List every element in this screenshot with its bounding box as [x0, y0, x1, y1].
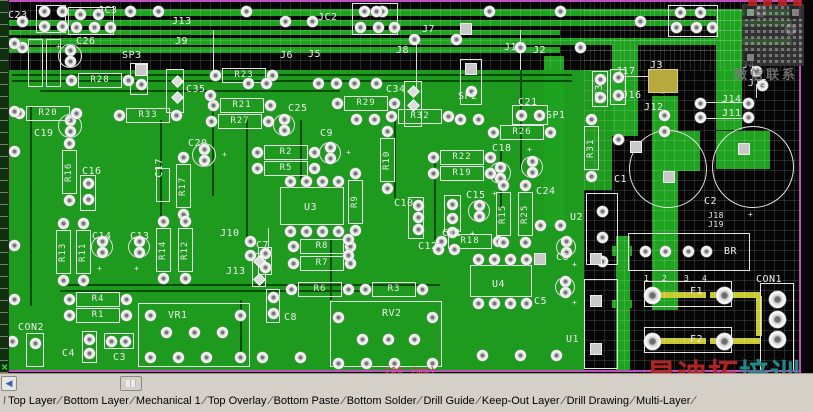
pad — [331, 78, 342, 89]
pad — [498, 237, 509, 248]
pad — [105, 22, 116, 33]
resistor-outline: R5 — [264, 161, 308, 176]
inner-trace — [434, 152, 436, 240]
silk-label: U2 — [570, 212, 583, 223]
pad — [443, 111, 454, 122]
pad — [286, 284, 297, 295]
pcb-canvas[interactable]: R28R23R20R33R21R27R29R32R2R5R22R19R26R8R… — [0, 0, 813, 373]
silk-label: 4 — [702, 274, 707, 283]
smd-pad — [590, 343, 602, 355]
smd-pad — [630, 141, 642, 153]
pad — [65, 56, 76, 67]
smd-pad — [738, 143, 750, 155]
pad — [428, 168, 439, 179]
pad — [333, 358, 344, 369]
resistor-outline: R25 — [518, 192, 533, 236]
pad — [369, 114, 380, 125]
left-ruler — [0, 0, 9, 373]
pad — [39, 21, 50, 32]
pad — [263, 116, 274, 127]
pad — [560, 276, 571, 287]
silk-label: C8 — [284, 312, 297, 323]
pad — [635, 16, 646, 27]
pad — [474, 211, 485, 222]
resistor-outline: R3 — [372, 282, 416, 297]
silk-label: C17 — [154, 158, 165, 178]
silk-label: + — [527, 145, 532, 154]
pad — [707, 22, 718, 33]
pad — [489, 298, 500, 309]
pad — [488, 127, 499, 138]
silk-label: C3 — [113, 352, 126, 363]
silk-label: VR1 — [168, 310, 188, 321]
pad — [171, 110, 182, 121]
pad — [9, 146, 20, 157]
pad — [349, 78, 360, 89]
pad — [595, 74, 606, 85]
silk-label: J13 — [172, 16, 192, 27]
pad — [97, 247, 108, 258]
pad — [307, 16, 318, 27]
gold-pad-area — [648, 69, 678, 93]
pad — [78, 275, 89, 286]
pad — [521, 254, 532, 265]
scrollbar-thumb[interactable] — [120, 376, 142, 391]
pad — [413, 224, 424, 235]
resistor-outline: R12 — [178, 228, 193, 272]
pad — [65, 126, 76, 137]
silk-label: 1 — [644, 274, 649, 283]
pad — [309, 163, 320, 174]
silk-label: + — [56, 42, 61, 51]
pad — [561, 236, 572, 247]
pad — [485, 168, 496, 179]
component-outline — [166, 69, 184, 113]
pad — [83, 178, 94, 189]
pad — [360, 284, 371, 295]
silk-label: CON1 — [756, 274, 782, 285]
pad — [451, 34, 462, 45]
pad — [136, 79, 147, 90]
silk-label: 3 — [684, 274, 689, 283]
silk-line — [213, 30, 214, 74]
silk-label: J19 — [708, 220, 724, 229]
pad — [332, 98, 343, 109]
pad — [125, 6, 136, 17]
component-outline — [28, 39, 43, 87]
pad — [84, 334, 95, 345]
pad — [64, 195, 75, 206]
pad — [586, 114, 597, 125]
pad — [498, 180, 509, 191]
pad — [9, 294, 20, 305]
layer-tab-bottom-solder[interactable]: Bottom Solder — [345, 392, 419, 407]
smd-pad — [590, 295, 602, 307]
pad — [382, 183, 393, 194]
pad — [586, 171, 597, 182]
pad — [660, 246, 671, 257]
silk-label: J16 — [622, 90, 642, 101]
silk-label: + — [134, 264, 139, 273]
pad — [516, 110, 527, 121]
pad — [210, 70, 221, 81]
resistor-outline: R17 — [176, 164, 191, 208]
pad — [413, 200, 424, 211]
layer-tab-bottom-paste[interactable]: Bottom Paste — [272, 392, 342, 407]
layer-tab-top-layer[interactable]: Top Layer — [6, 392, 58, 407]
silk-label: J13 — [226, 266, 246, 277]
pad — [64, 310, 75, 321]
pad — [534, 110, 545, 121]
silk-label: CON2 — [18, 322, 44, 333]
pad — [357, 334, 368, 345]
resistor-outline: R8 — [300, 239, 344, 254]
silk-label: + — [346, 148, 351, 157]
pad — [545, 127, 556, 138]
pad — [217, 327, 228, 338]
large-capacitor-outline — [712, 126, 794, 208]
pad — [474, 200, 485, 211]
pad — [382, 126, 393, 137]
silk-label: C18 — [492, 143, 512, 154]
silk-label: SP1 — [546, 110, 566, 121]
qr-finder-icon — [744, 51, 757, 64]
pad — [355, 22, 366, 33]
pad — [409, 334, 420, 345]
pad — [477, 350, 488, 361]
silk-label: + — [492, 189, 497, 198]
silk-label: J6 — [280, 50, 293, 61]
silk-label: C12 — [418, 241, 438, 252]
silk-label: J10 — [220, 228, 240, 239]
silk-label: J9 — [175, 36, 188, 47]
pad — [449, 244, 460, 255]
pad — [535, 220, 546, 231]
silk-label: C26 — [76, 36, 96, 47]
pad — [180, 273, 191, 284]
pad — [205, 90, 216, 101]
pad — [268, 308, 279, 319]
pad — [527, 156, 538, 167]
smd-pad — [460, 23, 472, 35]
pad — [359, 6, 370, 17]
pad — [560, 287, 571, 298]
silk-label: C14 — [92, 231, 112, 242]
pad — [555, 220, 566, 231]
smd-pad — [590, 253, 602, 265]
pad — [57, 6, 68, 17]
pad — [71, 108, 82, 119]
silk-label: 2 — [662, 274, 667, 283]
silk-label: F1 — [690, 286, 703, 297]
pad — [288, 258, 299, 269]
pad — [301, 176, 312, 187]
pad — [134, 247, 145, 258]
pad — [659, 126, 670, 137]
smd-pad — [135, 64, 147, 76]
keepout-line-top — [0, 0, 801, 2]
pad — [178, 152, 189, 163]
red-watermark-fragment — [748, 0, 806, 6]
resistor-outline: R2 — [264, 145, 308, 160]
silk-label: U1 — [566, 334, 579, 345]
resistor-outline: R22 — [440, 150, 484, 165]
pad — [261, 78, 272, 89]
smd-pad — [465, 63, 477, 75]
large-pad — [769, 311, 786, 328]
pad — [343, 284, 354, 295]
pad — [106, 336, 117, 347]
pad — [671, 22, 682, 33]
pad — [555, 6, 566, 17]
silk-label: C11 — [442, 228, 462, 239]
inner-trace — [30, 106, 32, 306]
pad — [58, 275, 69, 286]
pad — [252, 147, 263, 158]
pad — [9, 240, 20, 251]
silk-label: + — [470, 229, 475, 238]
pad — [285, 226, 296, 237]
pad — [428, 152, 439, 163]
pad — [743, 98, 754, 109]
silk-label: RV2 — [382, 308, 402, 319]
silk-label: C15 — [466, 190, 486, 201]
large-pad — [716, 333, 733, 350]
resistor-outline: R28 — [78, 73, 122, 88]
pad — [597, 206, 608, 217]
pad — [427, 312, 438, 323]
pad — [371, 6, 382, 17]
pad — [268, 292, 279, 303]
pad — [9, 106, 20, 117]
silk-label: + — [222, 150, 227, 159]
silk-label: C6 — [556, 252, 569, 263]
pad — [57, 21, 68, 32]
silk-label: C4 — [62, 348, 75, 359]
silk-label: J17 — [616, 66, 636, 77]
pad — [455, 114, 466, 125]
pad — [208, 100, 219, 111]
silk-label: J7 — [422, 24, 435, 35]
pad — [505, 254, 516, 265]
pad — [695, 112, 706, 123]
silk-label: U3 — [304, 202, 317, 213]
pad — [473, 254, 484, 265]
pad — [58, 218, 69, 229]
silk-label: C24 — [536, 186, 556, 197]
pad — [473, 298, 484, 309]
pad — [447, 199, 458, 210]
pad — [252, 163, 263, 174]
silk-label: J3 — [650, 60, 663, 71]
large-pad — [769, 331, 786, 348]
resistor-outline: R21 — [220, 98, 264, 113]
pad — [180, 216, 191, 227]
pad — [64, 138, 75, 149]
pad — [241, 6, 252, 17]
silk-label: J14 — [722, 94, 742, 105]
silk-label: JC3 — [98, 5, 118, 16]
pad — [473, 114, 484, 125]
silk-label: + — [572, 298, 577, 307]
silk-label: + — [748, 210, 753, 219]
qr-code-watermark — [742, 4, 804, 66]
silk-label: C33 — [594, 84, 605, 104]
pad — [743, 112, 754, 123]
resistor-outline: R14 — [156, 228, 171, 272]
layer-tab-multi-layer[interactable]: Multi-Layer — [634, 392, 692, 407]
large-pad — [644, 287, 661, 304]
resistor-outline: R10 — [380, 138, 395, 182]
pad — [199, 155, 210, 166]
pad — [173, 352, 184, 363]
pad — [84, 348, 95, 359]
pad — [30, 338, 41, 349]
silk-label: J1 — [504, 42, 517, 53]
pad — [505, 298, 516, 309]
pcb-editor-screen: R28R23R20R33R21R27R29R32R2R5R22R19R26R8R… — [0, 0, 813, 412]
pad — [383, 334, 394, 345]
pad — [447, 213, 458, 224]
horizontal-scrollbar[interactable]: ◀ — [0, 373, 813, 392]
pad — [389, 98, 400, 109]
pad — [350, 168, 361, 179]
pad — [257, 352, 268, 363]
resistor-outline: R26 — [500, 125, 544, 140]
pad — [373, 22, 384, 33]
layer-tab-bar: \Top Layer/Bottom Layer/Mechanical 1/Top… — [0, 392, 813, 412]
resistor-outline: R11 — [76, 230, 91, 274]
layer-tab-keep-out-layer[interactable]: Keep-Out Layer — [480, 392, 562, 407]
pad — [333, 226, 344, 237]
pad — [235, 352, 246, 363]
silk-label: C1 — [614, 174, 627, 185]
qr-finder-icon — [744, 6, 757, 19]
silk-label: JC2 — [318, 12, 338, 23]
pad — [521, 298, 532, 309]
pad — [343, 234, 354, 245]
layer-tab-mechanical-1[interactable]: Mechanical 1 — [134, 392, 203, 407]
smd-pad — [663, 171, 675, 183]
pad — [515, 350, 526, 361]
silk-label: F2 — [690, 334, 703, 345]
pad — [527, 167, 538, 178]
pad — [121, 310, 132, 321]
pad — [317, 226, 328, 237]
qr-finder-icon — [789, 6, 802, 19]
silk-label: J18 — [708, 211, 724, 220]
silk-label: J11 — [722, 108, 742, 119]
pad — [145, 352, 156, 363]
pad — [280, 16, 291, 27]
pad — [675, 7, 686, 18]
pad — [158, 273, 169, 284]
pad — [153, 6, 164, 17]
silk-label: C9 — [320, 128, 333, 139]
resistor-outline: R13 — [56, 230, 71, 274]
pad — [288, 241, 299, 252]
resistor-outline: R9 — [348, 180, 363, 224]
silk-label: C35 — [186, 84, 206, 95]
pad — [39, 6, 50, 17]
large-pad — [769, 291, 786, 308]
pad — [520, 180, 531, 191]
pad — [695, 98, 706, 109]
pad — [409, 34, 420, 45]
pad — [71, 22, 82, 33]
smd-pad — [534, 253, 546, 265]
resistor-outline: R15 — [496, 192, 511, 236]
silk-label: C25 — [288, 103, 308, 114]
large-pad — [644, 333, 661, 350]
pad — [640, 246, 651, 257]
pad — [66, 75, 77, 86]
silk-label: U4 — [492, 279, 505, 290]
layer-tab-drill-drawing[interactable]: Drill Drawing — [565, 392, 631, 407]
silk-label: C20 — [188, 138, 208, 149]
pad — [201, 352, 212, 363]
silk-label: C21 — [518, 97, 538, 108]
pad — [386, 111, 397, 122]
silk-label: C34 — [386, 84, 406, 95]
pad — [597, 232, 608, 243]
silk-label: + — [572, 260, 577, 269]
pad — [120, 336, 131, 347]
silk-label: C23 — [8, 10, 28, 21]
silk-label: C10 — [394, 198, 414, 209]
resistor-outline: R32 — [398, 109, 442, 124]
layer-tab-bottom-layer[interactable]: Bottom Layer — [61, 392, 130, 407]
pad — [361, 358, 372, 369]
layer-tab-drill-guide[interactable]: Drill Guide — [421, 392, 476, 407]
silk-label: J5 — [308, 49, 321, 60]
silk-label: J8 — [396, 45, 409, 56]
pad — [551, 350, 562, 361]
pad — [495, 162, 506, 173]
pad — [351, 114, 362, 125]
pad — [309, 147, 320, 158]
large-pad — [716, 287, 733, 304]
pad — [317, 176, 328, 187]
pad — [371, 78, 382, 89]
layer-tab-top-overlay[interactable]: Top Overlay — [206, 392, 269, 407]
pad — [75, 9, 86, 20]
copper-trace — [8, 38, 792, 45]
pad — [489, 254, 500, 265]
pad — [613, 134, 624, 145]
silk-label: + — [97, 264, 102, 273]
resistor-outline: R4 — [76, 292, 120, 307]
pad — [325, 142, 336, 153]
pad — [243, 78, 254, 89]
pad — [417, 284, 428, 295]
pad — [83, 194, 94, 205]
pad — [145, 310, 156, 321]
silk-label: SP2 — [458, 91, 478, 102]
pad — [9, 38, 20, 49]
resistor-outline: R6 — [298, 282, 342, 297]
resistor-outline: R20 — [26, 106, 70, 121]
scroll-left-button[interactable]: ◀ — [1, 376, 17, 391]
pad — [279, 125, 290, 136]
origin-marker-icon: × — [1, 360, 8, 373]
silk-label: C16 — [82, 166, 102, 177]
inner-trace — [246, 116, 248, 240]
silk-label: C5 — [534, 296, 547, 307]
pad — [301, 226, 312, 237]
silk-label: C2 — [704, 196, 717, 207]
silk-label: C19 — [34, 128, 54, 139]
